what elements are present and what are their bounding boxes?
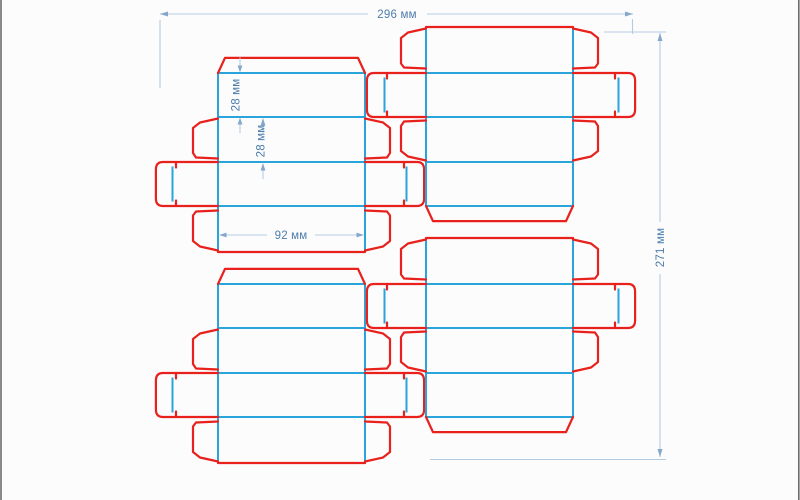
arrowhead-right (357, 233, 365, 238)
arrowhead-up (261, 163, 266, 171)
dieline-canvas: 296 мм 271 мм 28 мм (0, 0, 800, 500)
arrowhead-down (238, 66, 243, 73)
arrowhead-right (625, 12, 633, 17)
arrowhead-left (219, 233, 227, 238)
dimension-label-panel-width: 92 мм (275, 230, 308, 242)
dimension-total-height: 271 мм (430, 32, 667, 460)
dimension-panel1-height: 28 мм (231, 58, 243, 134)
dieline-drawing: 296 мм 271 мм 28 мм (0, 0, 800, 500)
dimension-label-total-height: 271 мм (655, 228, 667, 267)
arrowhead-up (238, 118, 243, 125)
arrowhead-top (658, 33, 663, 41)
arrowhead-up (261, 118, 266, 126)
dimension-label-panel2-height: 28 мм (256, 125, 268, 158)
arrowhead-left (160, 12, 168, 17)
arrowhead-bottom (658, 449, 663, 457)
dimension-label-panel1-height: 28 мм (231, 79, 243, 112)
dimension-total-width: 296 мм (160, 9, 633, 88)
dimension-label-total-width: 296 мм (377, 9, 416, 21)
dimension-panel2-height: 28 мм (256, 118, 268, 179)
dimension-panel-width: 92 мм (219, 230, 364, 242)
